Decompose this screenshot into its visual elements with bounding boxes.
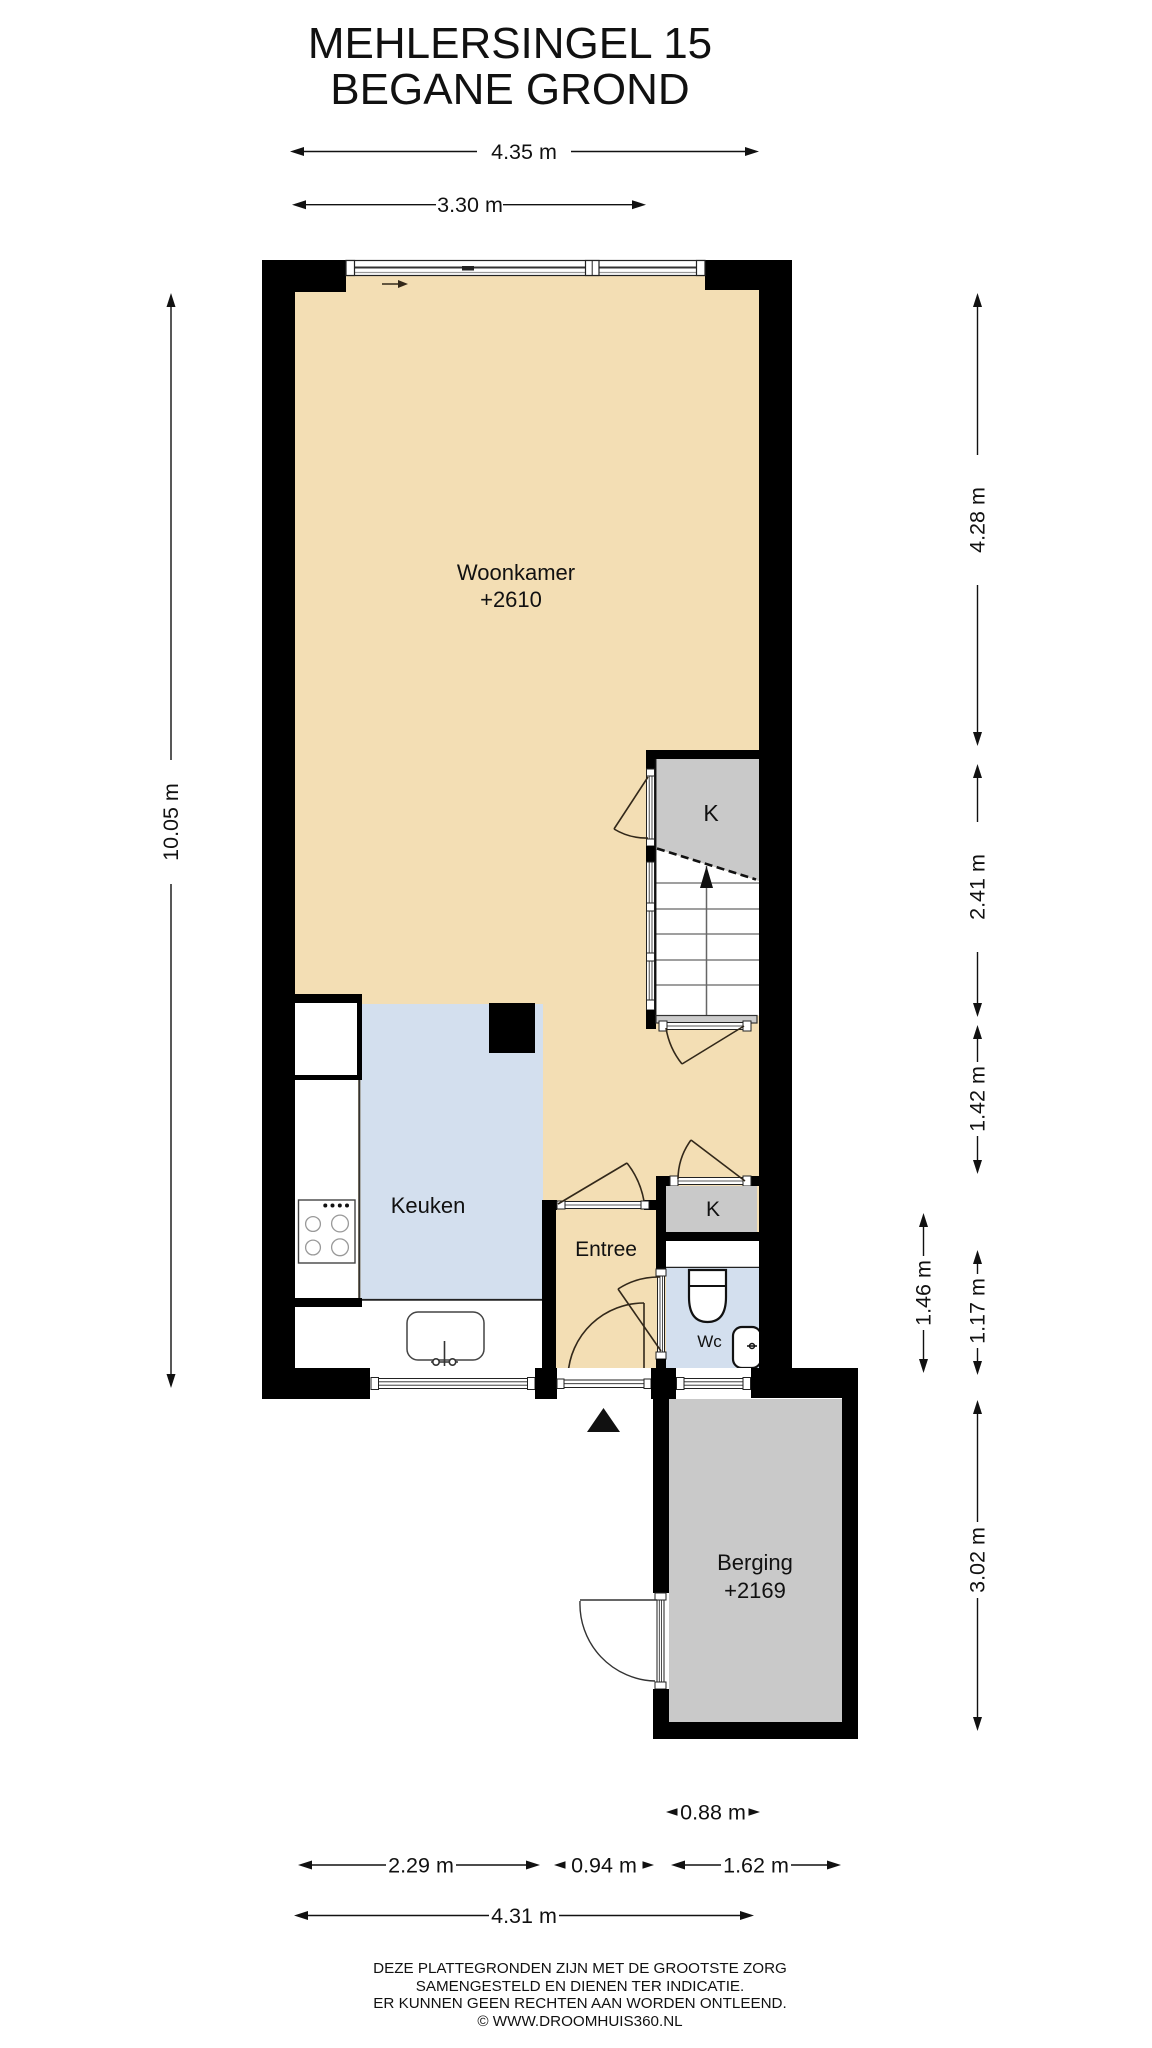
svg-text:2.29 m: 2.29 m (388, 1854, 454, 1878)
svg-text:0.88 m: 0.88 m (680, 1801, 746, 1825)
svg-text:Wc: Wc (697, 1332, 722, 1351)
svg-text:1.42 m: 1.42 m (966, 1066, 990, 1132)
svg-text:Berging: Berging (717, 1550, 793, 1575)
svg-text:2.41 m: 2.41 m (966, 854, 990, 920)
svg-text:© WWW.DROOMHUIS360.NL: © WWW.DROOMHUIS360.NL (477, 2013, 682, 2030)
svg-text:SAMENGESTELD EN DIENEN TER IND: SAMENGESTELD EN DIENEN TER INDICATIE. (416, 1978, 745, 1995)
svg-text:Woonkamer: Woonkamer (457, 560, 575, 585)
svg-text:K: K (706, 1198, 720, 1221)
svg-text:+2169: +2169 (724, 1578, 786, 1603)
svg-text:4.28 m: 4.28 m (966, 487, 990, 553)
svg-text:BEGANE GROND: BEGANE GROND (330, 65, 689, 114)
svg-text:10.05 m: 10.05 m (159, 783, 183, 861)
svg-text:Entree: Entree (575, 1238, 637, 1261)
svg-text:K: K (703, 800, 719, 826)
svg-text:1.46 m: 1.46 m (912, 1260, 936, 1326)
svg-text:1.62 m: 1.62 m (723, 1854, 789, 1878)
svg-text:3.02 m: 3.02 m (966, 1527, 990, 1593)
svg-text:4.35 m: 4.35 m (491, 140, 557, 164)
svg-text:DEZE PLATTEGRONDEN ZIJN MET DE: DEZE PLATTEGRONDEN ZIJN MET DE GROOTSTE … (373, 1960, 787, 1977)
svg-text:3.30 m: 3.30 m (437, 193, 503, 217)
svg-text:0.94 m: 0.94 m (571, 1854, 637, 1878)
svg-text:1.17 m: 1.17 m (966, 1278, 990, 1344)
svg-text:ER KUNNEN GEEN RECHTEN AAN WOR: ER KUNNEN GEEN RECHTEN AAN WORDEN ONTLEE… (373, 1995, 787, 2012)
svg-text:4.31 m: 4.31 m (491, 1904, 557, 1928)
svg-text:+2610: +2610 (480, 587, 542, 612)
svg-text:MEHLERSINGEL 15: MEHLERSINGEL 15 (308, 19, 712, 68)
svg-text:Keuken: Keuken (391, 1193, 466, 1218)
